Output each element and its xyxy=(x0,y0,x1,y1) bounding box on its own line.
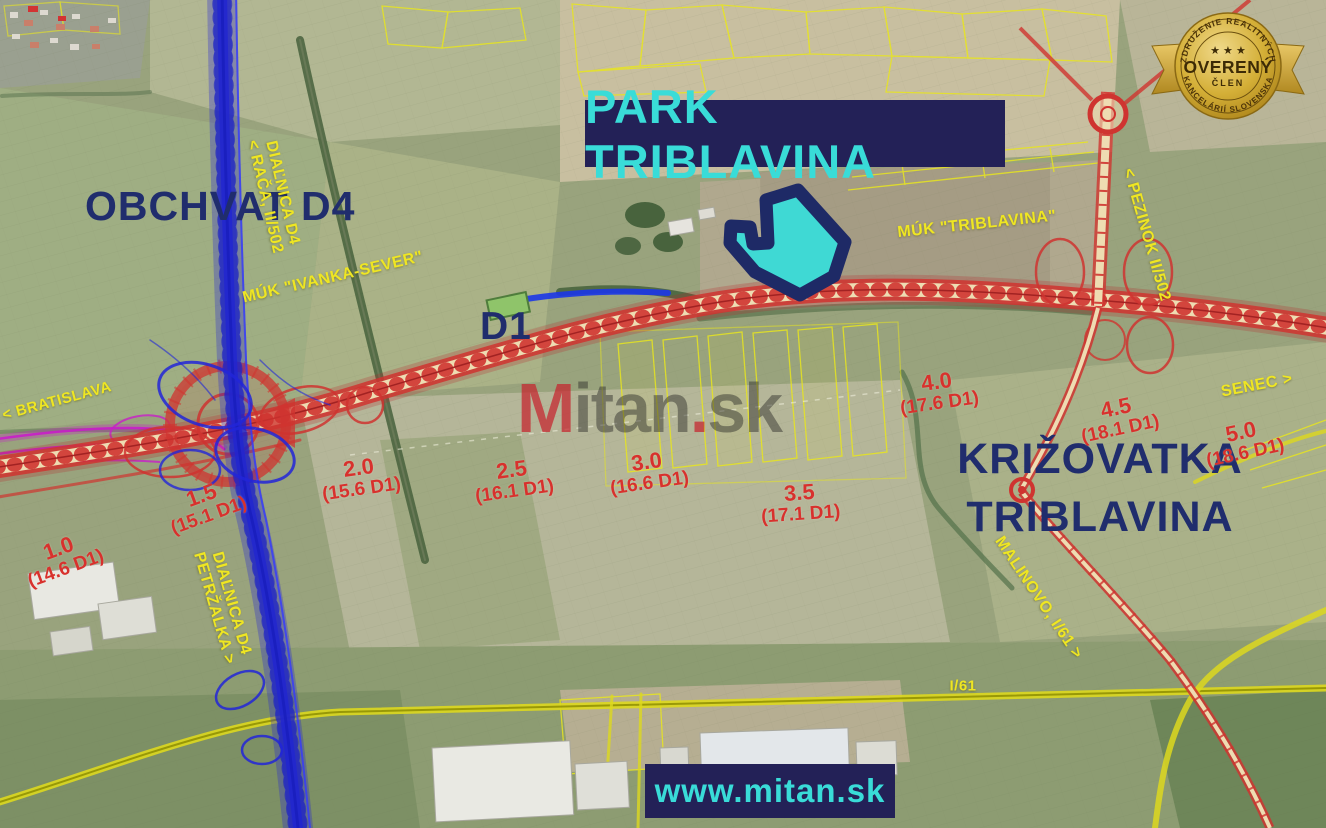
map-screenshot: OBCHVAT D4 D1 KRIŽOVATKA TRIBLAVINA PARK… xyxy=(0,0,1326,828)
watermark-logo: Mitan.sk xyxy=(517,368,781,448)
watermark-dot: . xyxy=(690,369,707,447)
watermark-itan: itan xyxy=(573,369,689,447)
overeny-badge-seal: ZDRUŽENIE REALITNÝCH KANCELÁRIÍ SLOVENSK… xyxy=(1150,4,1306,132)
heading-d1: D1 xyxy=(480,305,532,349)
road-label-i61: I/61 xyxy=(949,677,976,694)
title-banner: PARK TRIBLAVINA xyxy=(585,100,1005,167)
badge-center-text: OVERENÝ xyxy=(1183,56,1272,77)
overeny-badge: ZDRUŽENIE REALITNÝCH KANCELÁRIÍ SLOVENSK… xyxy=(1150,4,1306,132)
website-banner[interactable]: www.mitan.sk xyxy=(645,764,895,818)
badge-stars-icon: ★ ★ ★ xyxy=(1210,45,1246,57)
watermark-sk: sk xyxy=(707,369,781,447)
heading-obchvat-d4: OBCHVAT D4 xyxy=(85,183,355,230)
badge-sub-text: ČLEN xyxy=(1212,77,1245,88)
watermark-m: M xyxy=(517,369,573,447)
distance-marker-3-5: 3.5 (17.1 D1) xyxy=(759,478,841,528)
